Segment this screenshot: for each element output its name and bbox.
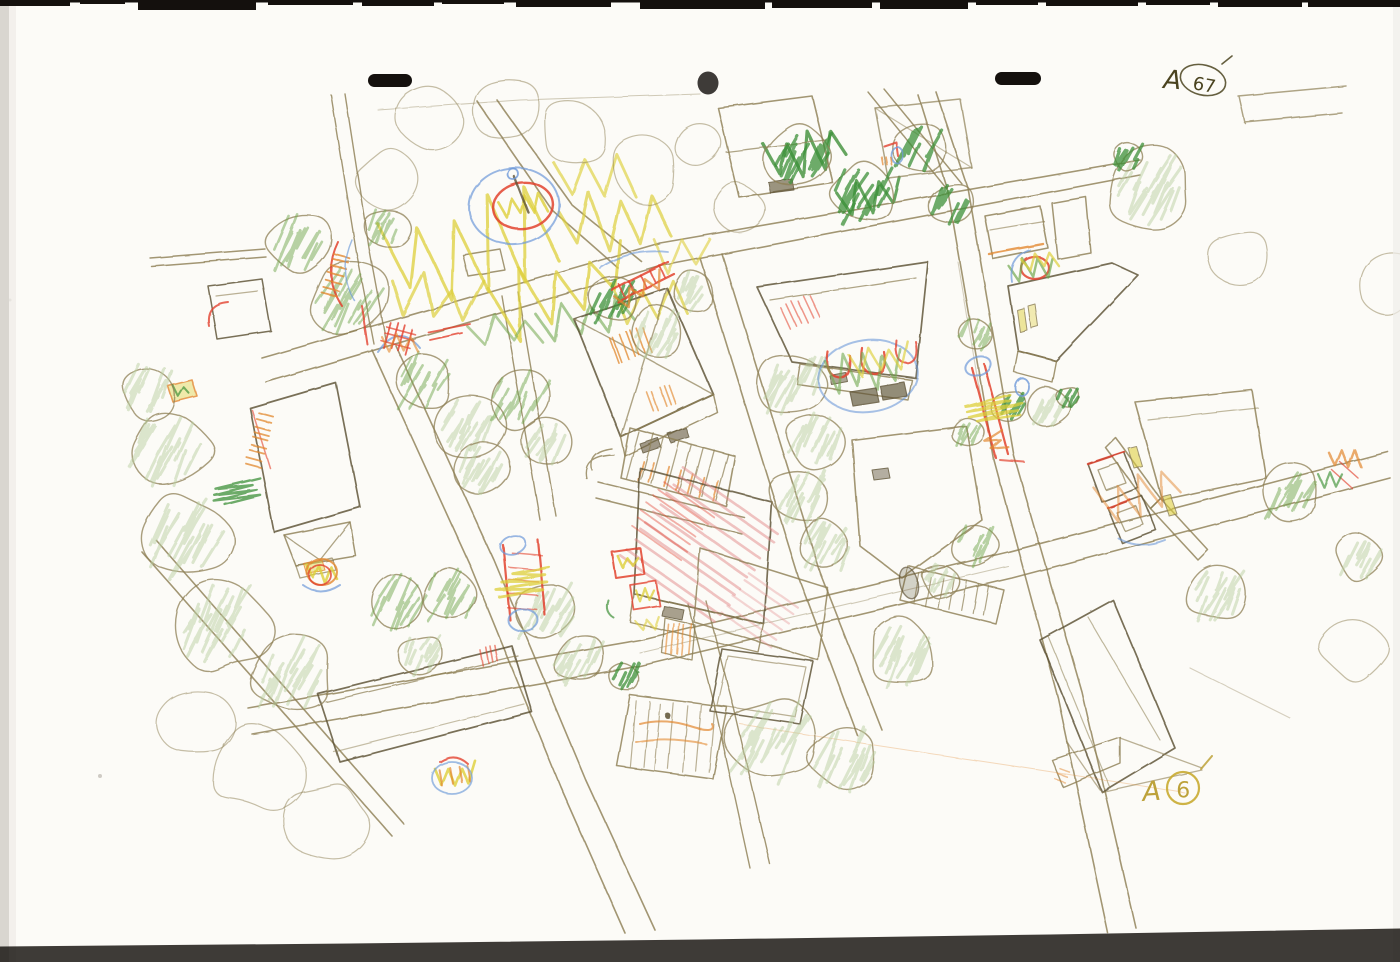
sandbox — [850, 388, 879, 406]
carport — [208, 279, 271, 339]
field-rows — [630, 701, 715, 772]
roof-ridge — [726, 140, 826, 152]
street-streaks — [480, 646, 498, 666]
scan-edge-top — [0, 0, 70, 6]
tree-foliage — [554, 639, 603, 685]
street-edge — [868, 92, 946, 188]
roof-hatch — [781, 295, 820, 329]
tree-foliage — [316, 267, 383, 333]
scan-edge-top — [976, 0, 1038, 5]
house-se-roof — [1040, 600, 1175, 792]
tree — [724, 699, 815, 776]
annotation-flourish — [1222, 56, 1232, 64]
annotation-flourish — [1201, 756, 1212, 769]
park-pole-top — [508, 169, 519, 180]
tree-foliage — [405, 635, 440, 675]
tree-foliage — [1266, 473, 1316, 519]
marker-scribble — [1021, 253, 1059, 271]
carport — [216, 291, 258, 296]
scan-edge-top — [80, 0, 125, 4]
scan-edge-top — [1046, 0, 1138, 6]
corner-marker-blue — [600, 251, 668, 268]
porch-gable — [284, 522, 350, 560]
tree — [395, 86, 464, 150]
scan-edge-top — [880, 0, 968, 9]
scan-dust — [98, 774, 102, 778]
scan-edge-left — [0, 0, 9, 962]
marker-scribble — [635, 617, 659, 629]
tree-foliage — [369, 210, 396, 245]
scan-edge-top — [772, 0, 872, 8]
pencil-sketch-layer — [123, 80, 1400, 933]
tree — [1208, 232, 1267, 285]
house-partial — [1238, 86, 1346, 123]
scan-edge-top — [1308, 0, 1400, 7]
lit-window — [1028, 304, 1038, 328]
house-ne-wing — [1052, 197, 1091, 259]
park-grass-scribble — [553, 154, 636, 197]
shrub-mark — [1318, 472, 1342, 487]
scan-edge-top — [268, 0, 353, 5]
tree-foliage — [875, 627, 930, 688]
car-mark — [1088, 452, 1124, 464]
park-grass-scribble — [654, 239, 710, 273]
annotation-bottom-letter: A — [1139, 776, 1162, 808]
street-edge — [918, 95, 1108, 933]
peg-hole-center — [698, 72, 719, 95]
tree-foliage — [184, 585, 250, 661]
field-mark — [640, 721, 712, 729]
tree — [613, 135, 673, 205]
tree-foliage — [526, 425, 565, 465]
street-edge — [497, 100, 642, 262]
sandbox — [880, 382, 907, 400]
entry-steps — [586, 449, 614, 479]
scan-edge-top — [1146, 0, 1210, 5]
house-mid-roof — [852, 426, 982, 578]
lit-window — [1017, 308, 1027, 332]
house-e-roof — [1135, 390, 1266, 500]
scan-edge-top — [442, 0, 504, 4]
carport — [150, 249, 266, 266]
quonset-end — [896, 565, 921, 600]
tree-foliage — [678, 272, 702, 312]
roof-ridge — [990, 221, 1044, 230]
wall-mark — [1055, 769, 1069, 783]
car — [1088, 452, 1138, 502]
peg-hole-left — [368, 74, 412, 87]
street-edge — [266, 175, 1140, 382]
shrub-mark — [607, 600, 614, 618]
scan-edge-top — [516, 0, 611, 7]
marker-square-red — [612, 548, 644, 578]
tree — [1318, 620, 1389, 682]
lot-line — [1190, 668, 1290, 718]
curb-mark — [1000, 460, 1024, 462]
tree — [675, 124, 721, 166]
scanned-genga-layout-page: A67A6 — [0, 0, 1400, 962]
house-se-wing — [1052, 737, 1120, 787]
roof-ridge — [875, 108, 972, 168]
tree — [157, 692, 236, 752]
tree — [545, 101, 606, 164]
corner-hatch — [882, 157, 892, 165]
scan-edge-top — [1218, 0, 1302, 7]
annotation-top-letter: A — [1161, 65, 1183, 96]
scan-edge-bottom — [0, 929, 1400, 962]
annotation-bottom-number: 6 — [1176, 778, 1191, 803]
tree — [355, 148, 418, 210]
tree-foliage — [1195, 572, 1244, 621]
car-cabin — [1098, 463, 1126, 490]
roof-ridge — [1148, 408, 1258, 420]
scan-edge-top — [362, 0, 434, 6]
genga-drawing-canvas: A67A6 — [0, 0, 1400, 962]
tree-foliage — [1118, 156, 1181, 225]
roof-ridge — [334, 704, 524, 752]
marker-scribble — [1329, 450, 1361, 467]
square-lot-inner — [717, 656, 806, 717]
window — [872, 468, 890, 480]
peg-hole-right — [995, 72, 1041, 85]
tree-foliage — [958, 526, 993, 567]
field-dot — [665, 713, 671, 719]
scan-edge-top — [640, 0, 765, 9]
scan-edge-right — [1393, 0, 1400, 962]
tree-foliage — [836, 168, 892, 225]
scan-edge-left — [9, 0, 16, 962]
tree — [714, 182, 765, 232]
shed-roof — [985, 206, 1048, 259]
tree-foliage — [125, 364, 172, 411]
marker-scribble — [636, 588, 654, 602]
tree-foliage — [789, 413, 841, 464]
roof-hatch — [647, 386, 677, 411]
scan-edge-top — [138, 0, 256, 10]
vine-scribble — [214, 478, 261, 504]
tree-foliage — [460, 447, 502, 494]
scan-artifact-layer: A67A6 — [0, 0, 1400, 962]
tree-foliage — [1341, 542, 1382, 578]
